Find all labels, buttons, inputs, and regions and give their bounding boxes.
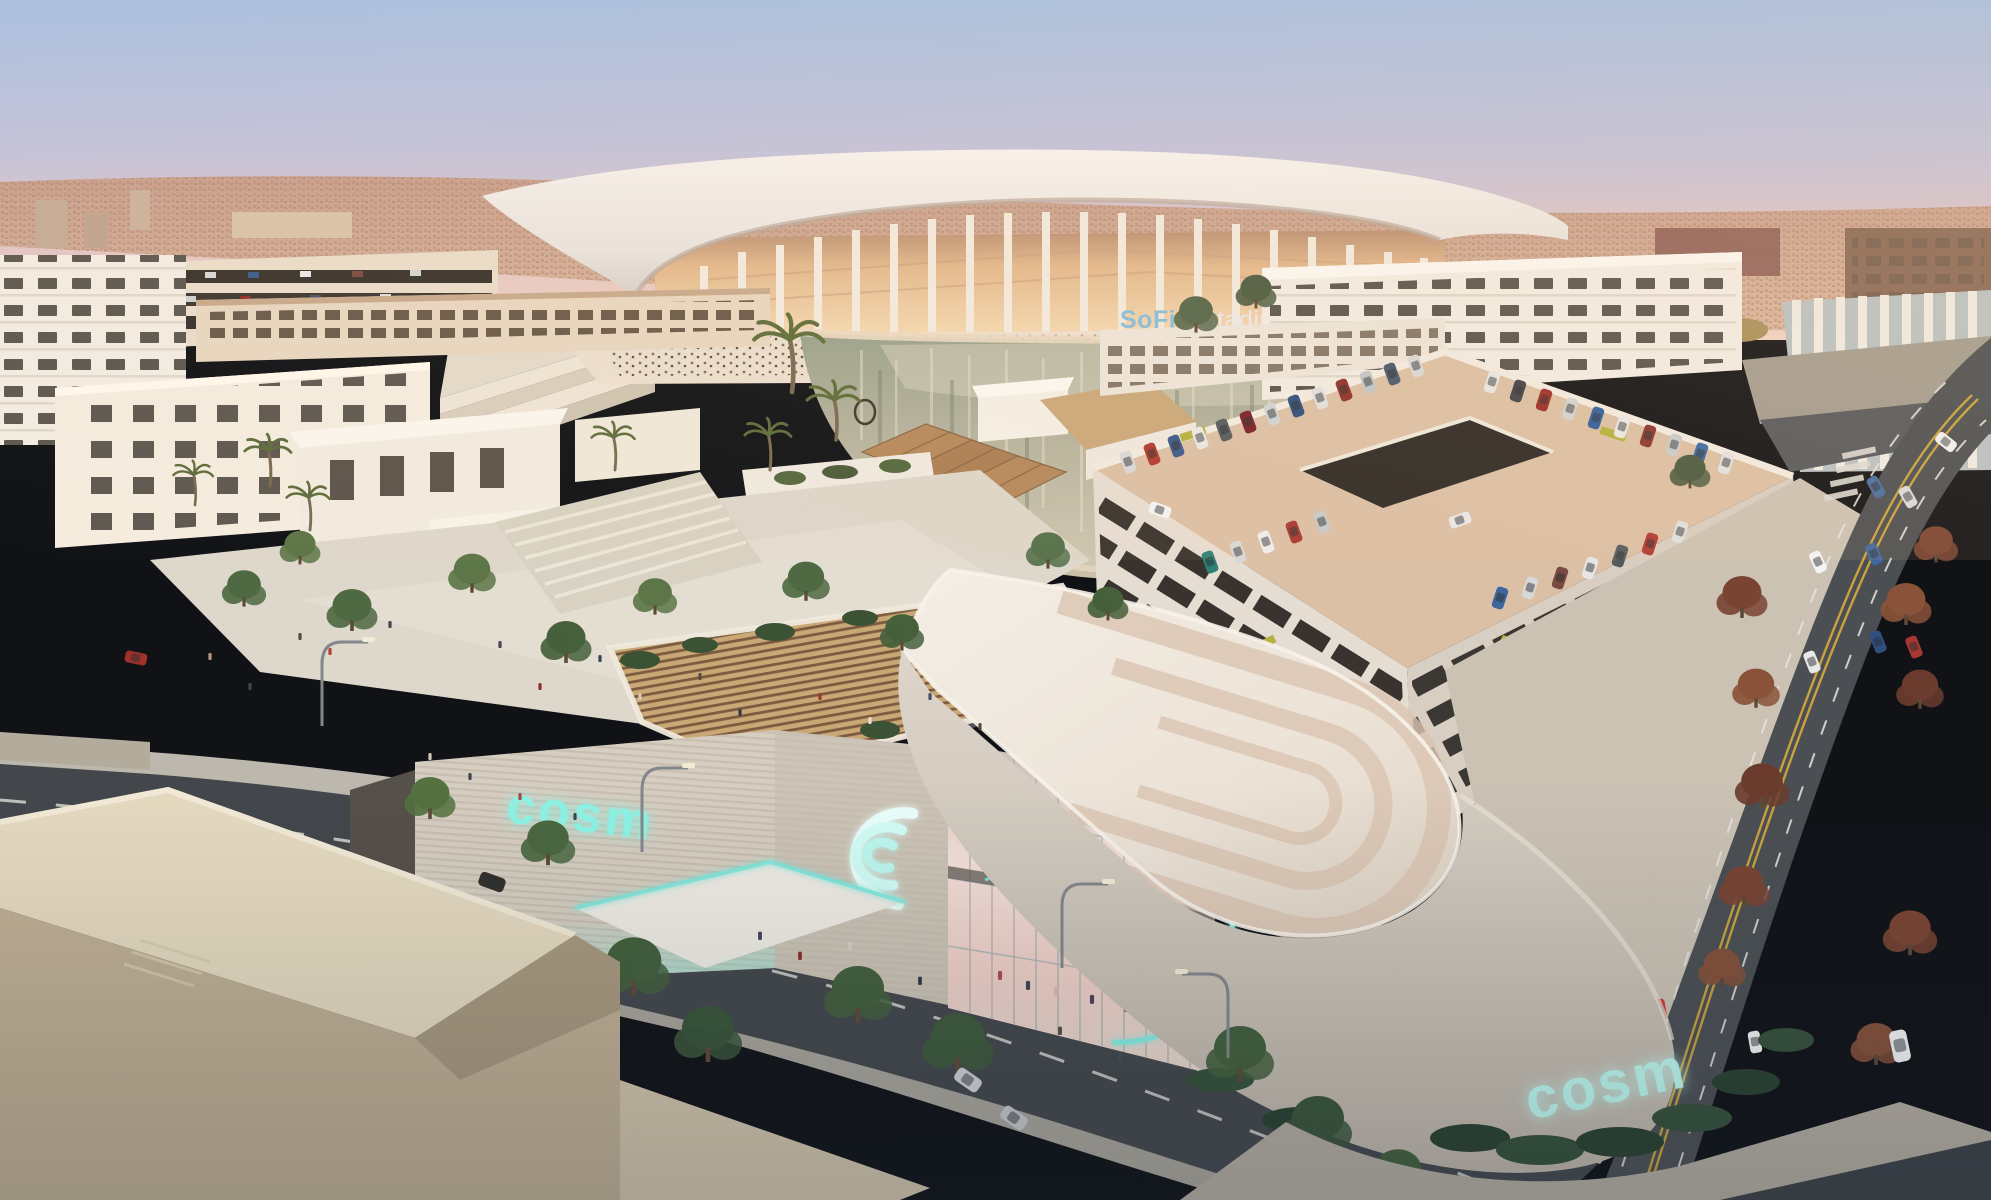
scene-canvas: SoFi Stadium xyxy=(0,0,1991,1200)
aerial-rendering-cosm-sofi: SoFi Stadium xyxy=(0,0,1991,1200)
